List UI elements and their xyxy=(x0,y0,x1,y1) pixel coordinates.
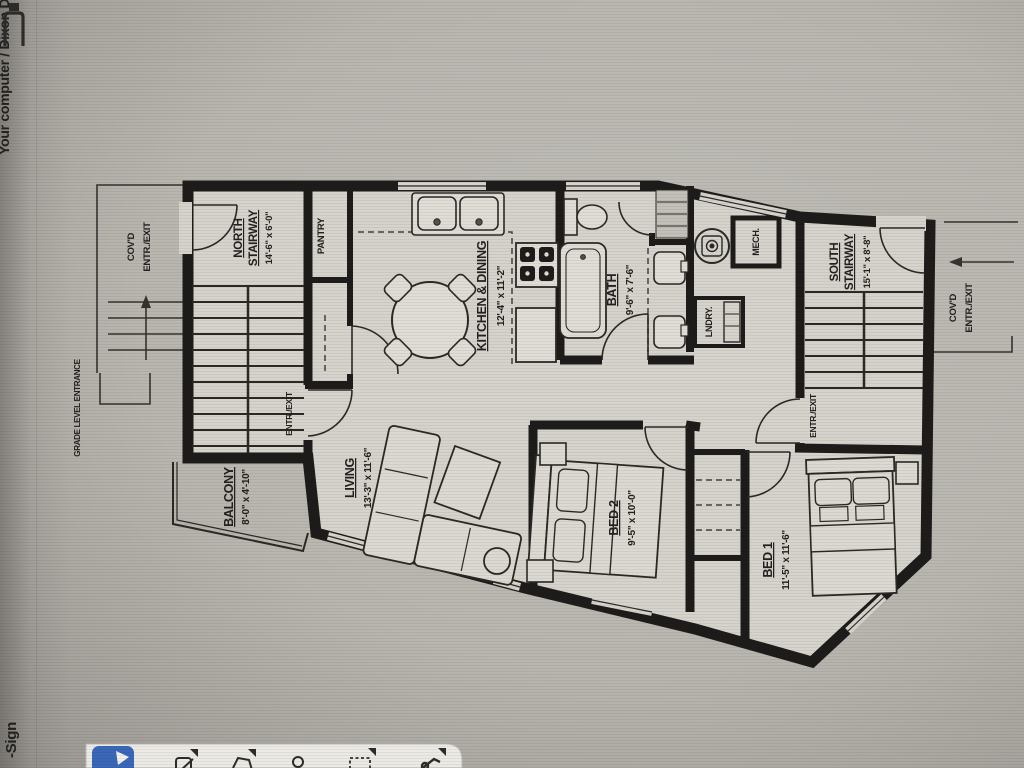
bath-label: BATH xyxy=(605,273,619,306)
covd-right-label: COV'D xyxy=(948,293,959,322)
svg-text:ENTR./EXIT: ENTR./EXIT xyxy=(142,222,153,272)
north-stairway-dims: 14'-6" x 6'-0" xyxy=(264,212,275,265)
svg-text:ENTR./EXIT: ENTR./EXIT xyxy=(964,283,975,333)
bed2-label: BED 2 xyxy=(607,500,621,536)
balcony-label: BALCONY xyxy=(222,466,236,527)
south-stairway-dims: 15'-1" x 8'-8" xyxy=(862,236,873,289)
drain-icon xyxy=(710,244,714,248)
entr-exit-left-label: ENTR./EXIT xyxy=(284,391,294,436)
living-dims: 13'-3" x 11'-6" xyxy=(363,447,374,508)
bed1-dims: 11'-5" x 11'-6" xyxy=(781,530,792,590)
toolbar xyxy=(86,744,462,768)
kitchen-dims: 12'-4" x 11'-2" xyxy=(496,265,507,326)
covd-left-label: COV'D xyxy=(126,232,137,261)
covered-entry-left xyxy=(97,185,183,404)
nightstand xyxy=(896,462,918,484)
toilet-bowl xyxy=(577,205,607,229)
svg-text:STAIRWAY: STAIRWAY xyxy=(248,209,260,266)
bed2-dims: 9'-5" x 10'-0" xyxy=(627,490,638,546)
vanity-sink-1 xyxy=(654,252,685,284)
bath-dims: 9'-6" x 7'-6" xyxy=(625,264,636,315)
toilet-tank xyxy=(564,199,577,235)
grade-level-label: GRADE LEVEL ENTRANCE xyxy=(73,358,82,456)
arrow-head-icon xyxy=(949,257,962,267)
nightstand xyxy=(540,443,566,465)
balcony-dims: 8'-0" x 4'-10" xyxy=(241,469,252,525)
pillow xyxy=(815,478,852,505)
drain-icon xyxy=(581,255,586,260)
vanity-sink-2 xyxy=(654,316,685,348)
blanket-fold xyxy=(810,523,895,552)
entr-exit-right-label: ENTR./EXIT xyxy=(808,393,818,438)
faucet-icon xyxy=(681,325,688,336)
pillow xyxy=(820,507,848,522)
south-stairway-label: SOUTH xyxy=(829,243,841,282)
pillow xyxy=(856,505,884,520)
svg-text:STAIRWAY: STAIRWAY xyxy=(844,233,856,290)
side-table xyxy=(484,548,510,574)
pillow xyxy=(553,519,586,563)
living-label: LIVING xyxy=(343,458,357,498)
app-flag-icon[interactable] xyxy=(92,746,134,768)
faucet-icon xyxy=(681,261,688,272)
drain-icon xyxy=(434,219,440,225)
nightstand xyxy=(527,560,553,582)
kitchen-label: KITCHEN & DINING xyxy=(475,241,489,351)
drain-icon xyxy=(476,219,482,225)
sign-panel-label: -Sign xyxy=(3,722,20,758)
pantry-label: PANTRY xyxy=(316,217,327,254)
bed1-label: BED 1 xyxy=(761,542,775,578)
pillow xyxy=(556,469,589,513)
floor-plan-drawing: NORTH STAIRWAY 14'-6" x 6'-0" COV'D ENTR… xyxy=(0,0,1024,768)
north-stairway-label: NORTH xyxy=(233,218,245,257)
pillow xyxy=(853,477,890,504)
lndry-label: LNDRY. xyxy=(704,307,714,337)
photographed-screen: NORTH STAIRWAY 14'-6" x 6'-0" COV'D ENTR… xyxy=(0,0,1024,768)
mech-label: MECH. xyxy=(751,228,761,256)
fridge xyxy=(516,308,556,362)
